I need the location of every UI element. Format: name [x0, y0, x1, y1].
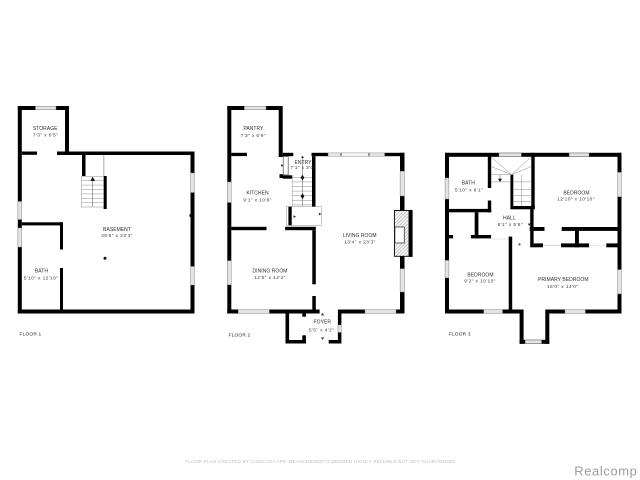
svg-text:5'5" x 4'2": 5'5" x 4'2" [309, 328, 334, 334]
svg-text:5'10" x 12'10": 5'10" x 12'10" [24, 275, 59, 281]
svg-text:13'4" x 23'3": 13'4" x 23'3" [344, 240, 376, 246]
svg-text:8'1" x 5'6": 8'1" x 5'6" [498, 222, 523, 228]
svg-text:5'10" x 8'1": 5'10" x 8'1" [455, 188, 483, 194]
svg-text:KITCHEN: KITCHEN [246, 191, 269, 197]
svg-text:FLOOR 3: FLOOR 3 [449, 332, 471, 338]
svg-text:12'10" x 10'10": 12'10" x 10'10" [557, 197, 595, 203]
svg-text:BEDROOM: BEDROOM [467, 272, 493, 278]
svg-text:7'3" x 6'5": 7'3" x 6'5" [33, 132, 58, 138]
svg-text:12'5" x 12'2": 12'5" x 12'2" [254, 275, 286, 281]
svg-text:9'1" x 10'8": 9'1" x 10'8" [243, 198, 271, 204]
svg-text:BATH: BATH [35, 268, 49, 274]
svg-text:PANTRY: PANTRY [243, 126, 264, 132]
svg-text:FOYER: FOYER [314, 320, 332, 326]
svg-text:7'3" x 6'9": 7'3" x 6'9" [241, 133, 266, 139]
svg-text:DINING ROOM: DINING ROOM [253, 268, 288, 274]
svg-text:FLOOR 1: FLOOR 1 [20, 331, 42, 337]
svg-text:FLOOR PLAN CREATED BY CUBICASA: FLOOR PLAN CREATED BY CUBICASA APP. MEAS… [185, 459, 456, 464]
svg-text:HALL: HALL [503, 215, 516, 221]
svg-text:ENTRY: ENTRY [294, 160, 312, 166]
svg-text:BASEMENT: BASEMENT [103, 227, 131, 233]
svg-text:9'2" x 10'10": 9'2" x 10'10" [464, 279, 496, 285]
svg-text:25'6" x 23'3": 25'6" x 23'3" [101, 233, 133, 239]
svg-text:16'0" x 14'0": 16'0" x 14'0" [547, 284, 579, 290]
svg-text:BATH: BATH [462, 180, 476, 186]
svg-text:STORAGE: STORAGE [33, 126, 58, 132]
svg-text:PRIMARY BEDROOM: PRIMARY BEDROOM [538, 277, 589, 283]
svg-text:FLOOR 2: FLOOR 2 [229, 333, 251, 339]
svg-text:LIVING ROOM: LIVING ROOM [343, 233, 377, 239]
svg-text:Realcomp: Realcomp [574, 464, 637, 479]
svg-text:BEDROOM: BEDROOM [563, 190, 589, 196]
svg-text:7'1" x 3'0": 7'1" x 3'0" [290, 165, 315, 171]
